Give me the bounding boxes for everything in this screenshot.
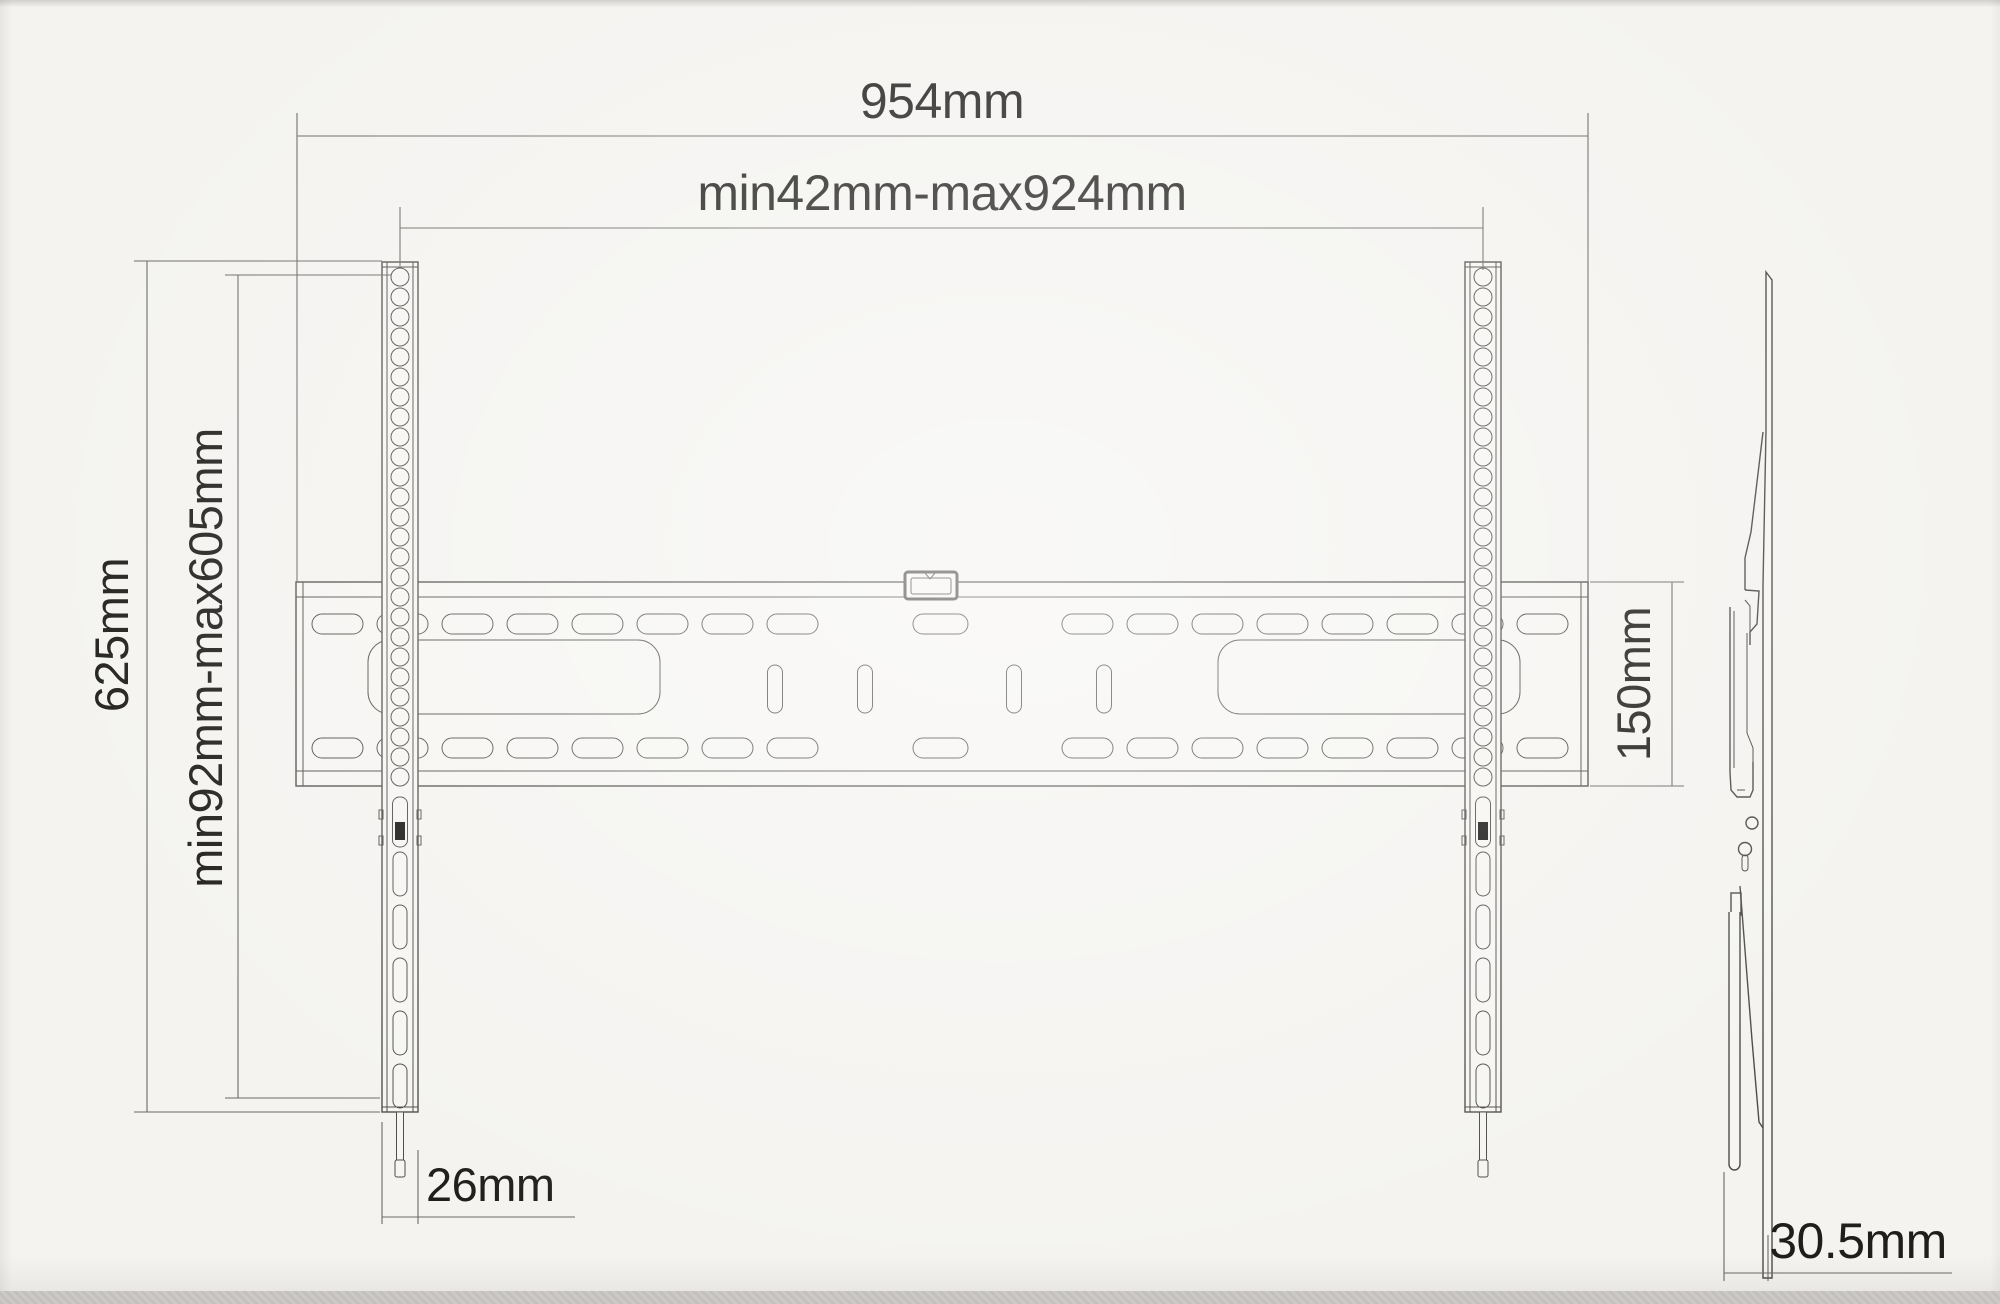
side-screw-head (1746, 817, 1758, 829)
side-pull-strap (1729, 912, 1740, 1170)
left-rail (379, 262, 421, 1177)
dim-overall-width-label: 954mm (860, 73, 1024, 129)
right-rail-lock-screw (1478, 822, 1488, 840)
left-rail-pull-rod (397, 1112, 404, 1164)
wall-mount-diagram: 954mm min42mm-max924mm 625mm min92mm-max… (0, 0, 2000, 1304)
dim-rail-width-label: 26mm (426, 1158, 555, 1211)
side-rail-mid-edge (1747, 633, 1753, 762)
right-rail (1462, 262, 1504, 1177)
dim-profile-depth: 30.5mm (1724, 1172, 1952, 1281)
side-plate-profile (1763, 272, 1772, 1278)
dim-profile-depth-label: 30.5mm (1769, 1213, 1947, 1269)
side-view (1729, 272, 1772, 1278)
dim-overall-width: 954mm (297, 73, 1588, 582)
dim-mount-width-label: min42mm-max924mm (697, 165, 1186, 221)
side-rail-top-hook-inner (1745, 600, 1750, 632)
top-lock-clip-outline (905, 572, 957, 599)
dim-plate-height-label: 150mm (1607, 607, 1660, 761)
dim-mount-height-label: min92mm-max605mm (179, 428, 232, 887)
front-view (296, 262, 1588, 1177)
side-rail-upper-taper (1745, 432, 1763, 590)
side-screw-block (1731, 893, 1741, 915)
dim-rail-height-label: 625mm (85, 558, 138, 712)
side-keyhole-slot (1742, 855, 1748, 871)
dim-plate-height: 150mm (1590, 582, 1684, 786)
dim-mount-width-range: min42mm-max924mm (400, 165, 1483, 270)
left-rail-pull-rod-tip (395, 1160, 405, 1177)
side-keyhole-circle (1739, 843, 1752, 856)
side-rail-bottom-hook (1730, 762, 1753, 797)
dim-rail-width: 26mm (382, 1122, 575, 1224)
left-rail-lock-screw (395, 822, 405, 840)
right-rail-pull-rod-tip (1478, 1160, 1488, 1177)
right-rail-pull-rod (1480, 1112, 1487, 1164)
wall-plate (296, 572, 1588, 786)
side-lever-diagonal (1740, 886, 1763, 1128)
technical-drawing-page: 954mm min42mm-max924mm 625mm min92mm-max… (0, 0, 2000, 1304)
top-lock-clip (905, 572, 957, 599)
